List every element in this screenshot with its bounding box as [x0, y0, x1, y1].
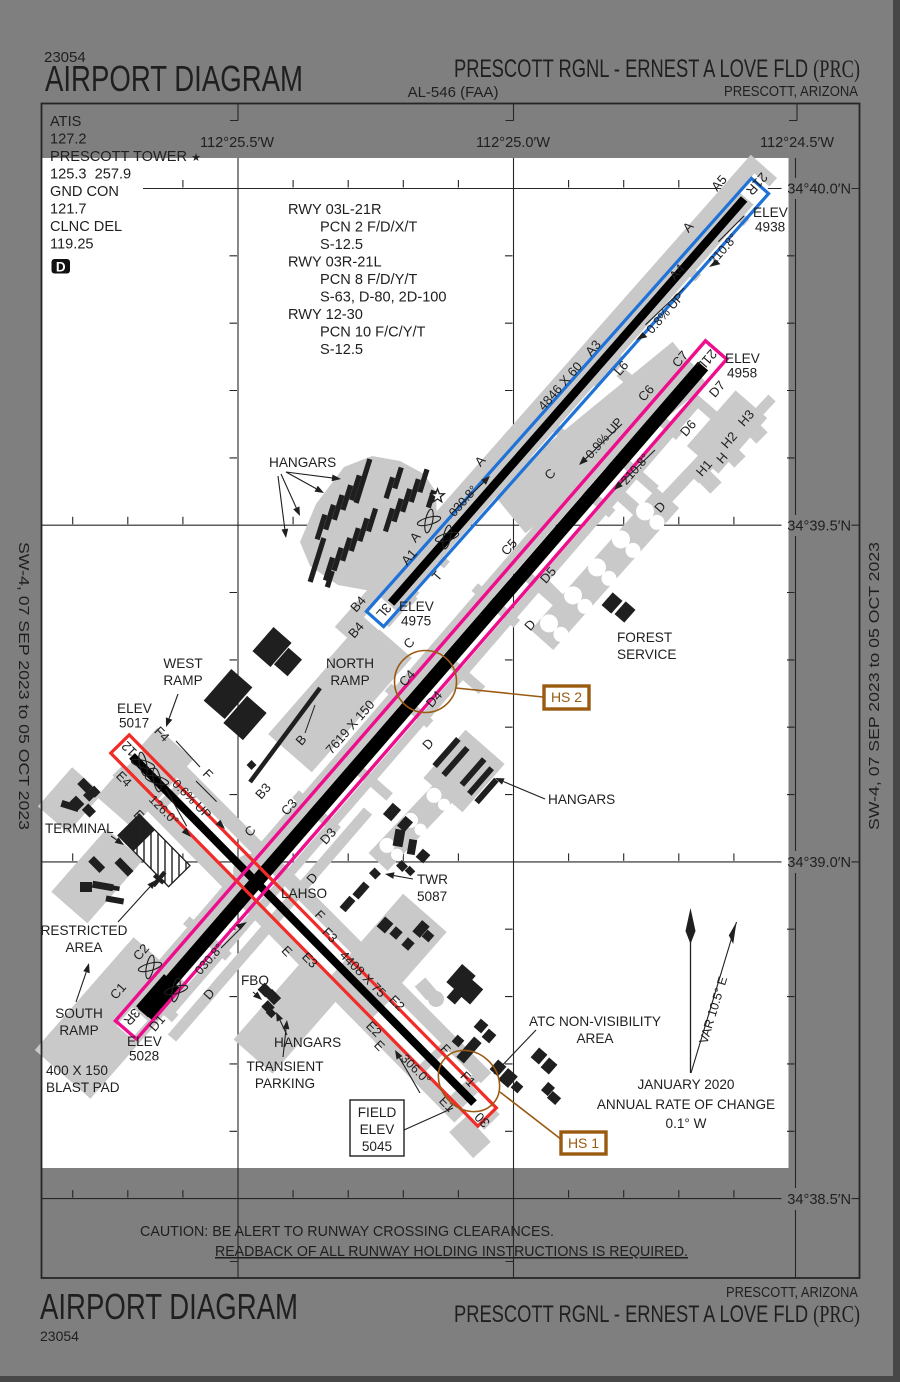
svg-text:AREA: AREA [65, 940, 103, 955]
svg-text:SERVICE: SERVICE [617, 647, 676, 662]
svg-text:PRESCOTT, ARIZONA: PRESCOTT, ARIZONA [724, 83, 858, 100]
svg-text:JANUARY 2020: JANUARY 2020 [638, 1077, 735, 1092]
svg-text:HANGARS: HANGARS [274, 1035, 341, 1050]
svg-text:4958: 4958 [727, 366, 757, 381]
svg-text:34°40.0′N: 34°40.0′N [787, 182, 851, 198]
svg-text:121.7: 121.7 [50, 202, 87, 218]
svg-text:5017: 5017 [119, 716, 149, 731]
svg-text:HS 1: HS 1 [568, 1135, 599, 1151]
svg-text:D: D [56, 260, 66, 275]
svg-text:RAMP: RAMP [330, 673, 369, 688]
svg-text:NORTH: NORTH [326, 656, 374, 671]
svg-text:23054: 23054 [40, 1328, 79, 1344]
svg-text:ATC NON-VISIBILITY: ATC NON-VISIBILITY [529, 1014, 661, 1029]
svg-text:PCN 2 F/D/X/T: PCN 2 F/D/X/T [320, 220, 417, 236]
svg-text:112°25.5′W: 112°25.5′W [200, 135, 274, 151]
svg-text:RAMP: RAMP [163, 673, 202, 688]
svg-text:BLAST PAD: BLAST PAD [46, 1080, 120, 1095]
svg-text:RWY 03L-21R: RWY 03L-21R [288, 202, 382, 218]
svg-text:HANGARS: HANGARS [269, 455, 336, 470]
svg-text:5087: 5087 [417, 889, 447, 904]
svg-text:AIRPORT DIAGRAM: AIRPORT DIAGRAM [40, 1286, 298, 1327]
svg-text:34°39.5′N: 34°39.5′N [787, 518, 851, 534]
svg-text:RAMP: RAMP [59, 1023, 98, 1038]
svg-text:400 X 150: 400 X 150 [46, 1063, 108, 1078]
svg-text:4975: 4975 [401, 614, 431, 629]
svg-text:RWY 03R-21L: RWY 03R-21L [288, 255, 382, 271]
svg-text:PRESCOTT, ARIZONA: PRESCOTT, ARIZONA [726, 1285, 858, 1301]
svg-text:S-63, D-80, 2D-100: S-63, D-80, 2D-100 [320, 290, 447, 306]
svg-text:CAUTION: BE ALERT TO RUNWAY CR: CAUTION: BE ALERT TO RUNWAY CROSSING CLE… [140, 1223, 554, 1240]
svg-text:112°24.5′W: 112°24.5′W [760, 135, 834, 151]
svg-text:TRANSIENT: TRANSIENT [246, 1059, 323, 1074]
svg-text:5045: 5045 [362, 1139, 392, 1154]
svg-text:125.3 257.9: 125.3 257.9 [50, 167, 131, 183]
svg-text:ELEV: ELEV [360, 1122, 395, 1137]
svg-text:CLNC DEL: CLNC DEL [50, 219, 122, 235]
svg-text:PCN 8 F/D/Y/T: PCN 8 F/D/Y/T [320, 272, 417, 288]
svg-text:RWY 12-30: RWY 12-30 [288, 307, 363, 323]
svg-text:4938: 4938 [755, 220, 785, 235]
svg-text:TWR: TWR [417, 872, 448, 887]
svg-text:PARKING: PARKING [255, 1076, 315, 1091]
svg-text:119.25: 119.25 [50, 237, 94, 253]
svg-text:AREA: AREA [576, 1031, 614, 1046]
svg-text:SOUTH: SOUTH [55, 1006, 103, 1021]
svg-text:PRESCOTT RGNL - ERNEST A LOVE: PRESCOTT RGNL - ERNEST A LOVE FLD (PRC) [454, 55, 860, 83]
svg-text:ELEV: ELEV [725, 351, 760, 366]
svg-text:GND CON: GND CON [50, 184, 119, 200]
svg-text:SW-4, 07 SEP 2023 to 05 OCT 20: SW-4, 07 SEP 2023 to 05 OCT 2023 [867, 542, 883, 830]
svg-text:AIRPORT DIAGRAM: AIRPORT DIAGRAM [45, 58, 303, 99]
svg-text:READBACK OF ALL RUNWAY HOLDING: READBACK OF ALL RUNWAY HOLDING INSTRUCTI… [215, 1243, 688, 1260]
svg-text:ELEV: ELEV [117, 701, 152, 716]
svg-text:ELEV: ELEV [127, 1034, 162, 1049]
svg-text:ANNUAL RATE OF CHANGE: ANNUAL RATE OF CHANGE [597, 1097, 775, 1112]
svg-text:5028: 5028 [129, 1049, 159, 1064]
svg-text:0.1° W: 0.1° W [666, 1116, 707, 1131]
svg-text:ATIS: ATIS [50, 114, 82, 130]
svg-text:S-12.5: S-12.5 [320, 342, 363, 358]
svg-text:RESTRICTED: RESTRICTED [41, 923, 128, 938]
svg-text:PCN 10 F/C/Y/T: PCN 10 F/C/Y/T [320, 325, 426, 341]
svg-text:WEST: WEST [163, 656, 202, 671]
svg-text:112°25.0′W: 112°25.0′W [476, 135, 550, 151]
svg-text:FOREST: FOREST [617, 630, 672, 645]
svg-text:S-12.5: S-12.5 [320, 237, 363, 253]
svg-text:HANGARS: HANGARS [548, 792, 615, 807]
svg-text:LAHSO: LAHSO [281, 886, 327, 901]
svg-text:SW-4, 07 SEP 2023 to 05 OCT 20: SW-4, 07 SEP 2023 to 05 OCT 2023 [15, 542, 31, 830]
svg-text:127.2: 127.2 [50, 132, 87, 148]
svg-text:FBO: FBO [241, 973, 269, 988]
svg-text:PRESCOTT RGNL - ERNEST A LOVE: PRESCOTT RGNL - ERNEST A LOVE FLD (PRC) [454, 1301, 860, 1328]
svg-text:ELEV: ELEV [399, 599, 434, 614]
svg-text:34°39.0′N: 34°39.0′N [787, 855, 851, 871]
svg-text:PRESCOTT TOWER ★: PRESCOTT TOWER ★ [50, 149, 201, 165]
svg-text:AL-546 (FAA): AL-546 (FAA) [408, 84, 499, 101]
svg-text:HS 2: HS 2 [551, 689, 582, 705]
svg-text:FIELD: FIELD [358, 1105, 397, 1120]
svg-text:ELEV: ELEV [753, 205, 788, 220]
svg-text:TERMINAL: TERMINAL [45, 821, 114, 836]
svg-text:34°38.5′N: 34°38.5′N [787, 1192, 851, 1208]
